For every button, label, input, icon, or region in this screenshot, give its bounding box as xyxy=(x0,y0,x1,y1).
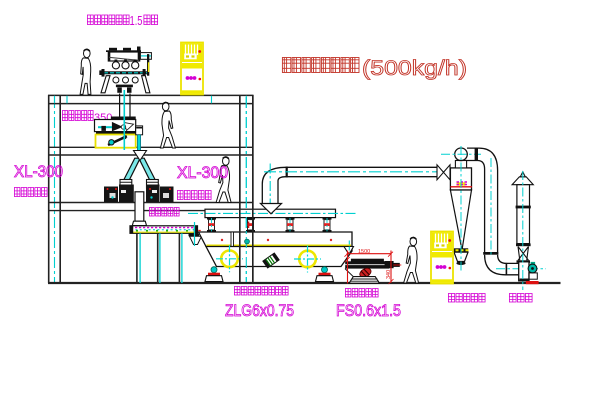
svg-text:XL-300: XL-300 xyxy=(14,162,63,181)
svg-text:340: 340 xyxy=(386,270,392,279)
svg-text:(500kg/h): (500kg/h) xyxy=(362,57,467,80)
svg-text:1.5: 1.5 xyxy=(130,13,143,28)
svg-text:FS0.6x1.5: FS0.6x1.5 xyxy=(336,301,401,320)
svg-text:XL-300: XL-300 xyxy=(177,163,228,182)
svg-text:1500: 1500 xyxy=(358,249,370,255)
svg-text:ZLG6x0.75: ZLG6x0.75 xyxy=(225,301,294,320)
